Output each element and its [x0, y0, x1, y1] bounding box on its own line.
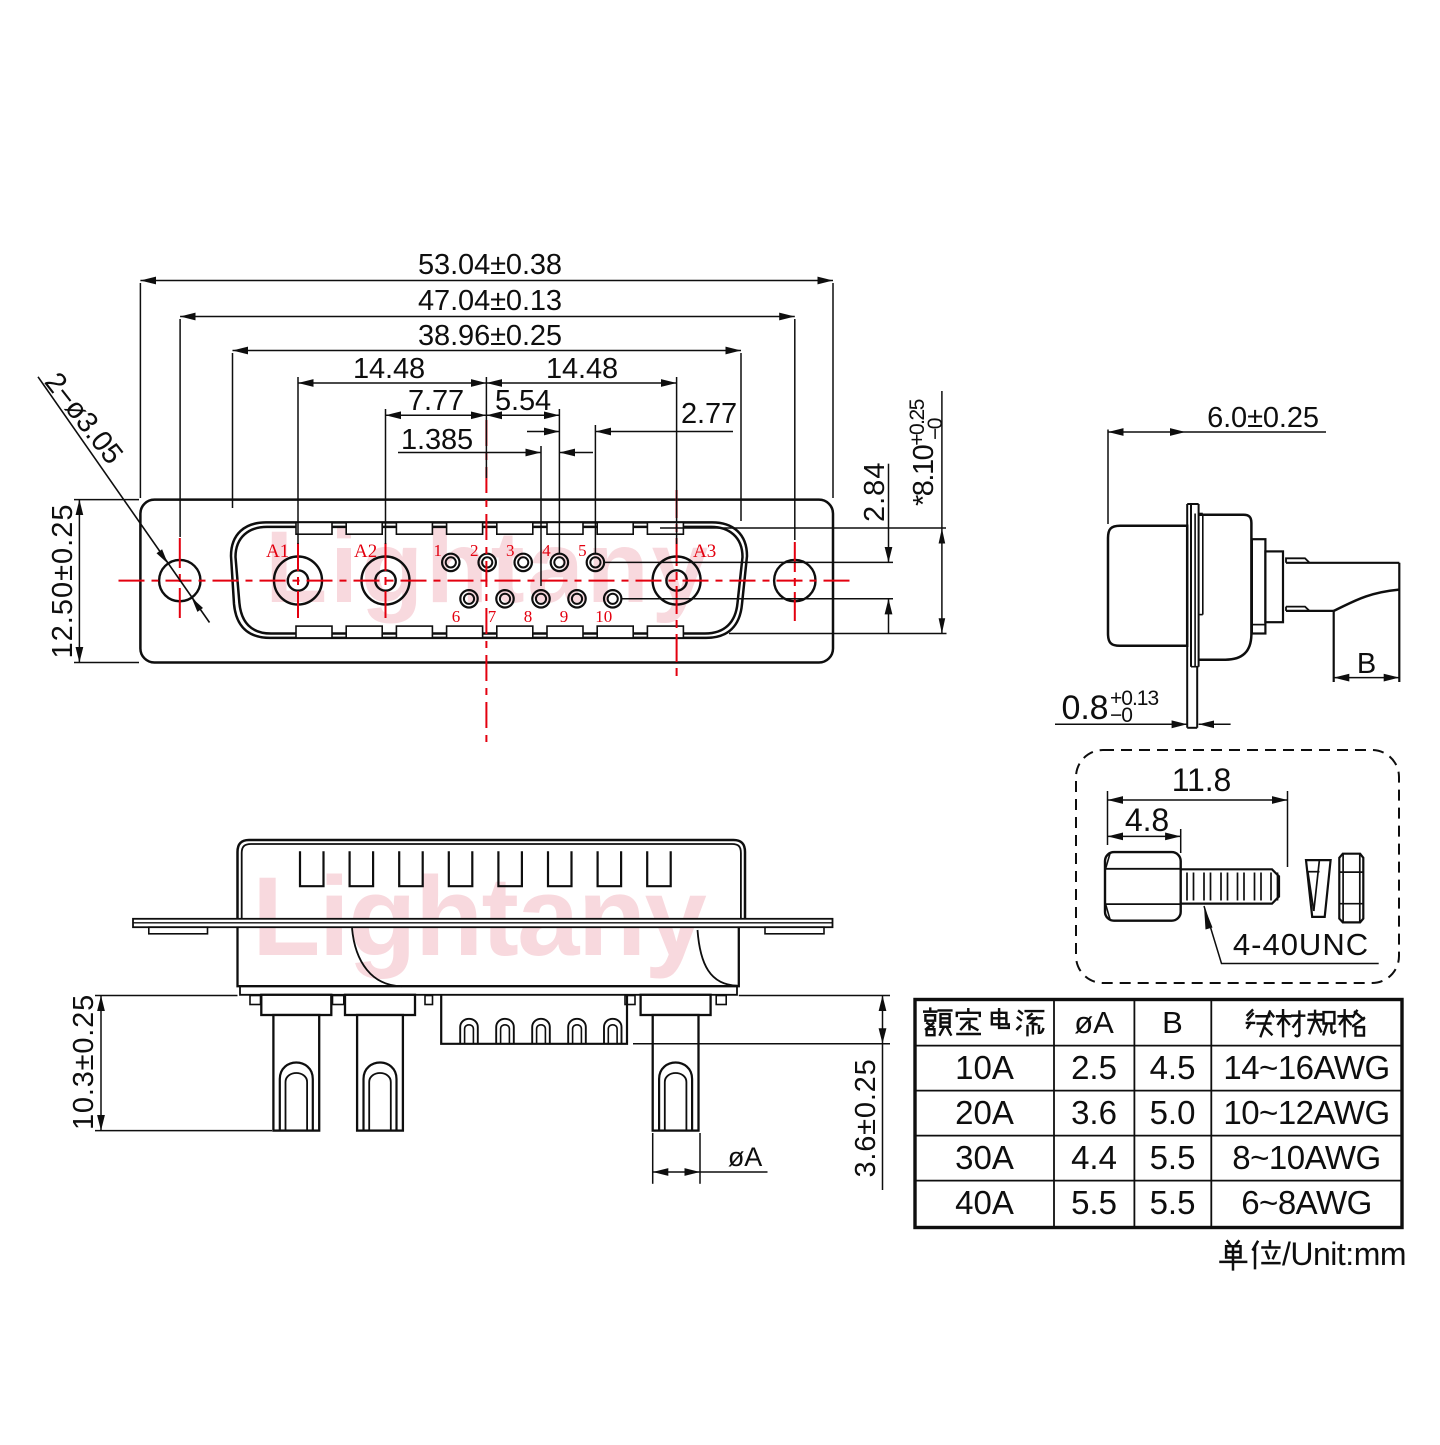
svg-text:øA: øA	[728, 1142, 762, 1172]
svg-text:14.48: 14.48	[546, 353, 618, 385]
svg-text:A1: A1	[266, 541, 289, 562]
svg-text:2.77: 2.77	[681, 398, 737, 430]
svg-text:10A: 10A	[955, 1049, 1014, 1086]
svg-text:14~16AWG: 14~16AWG	[1223, 1049, 1389, 1086]
svg-text:40A: 40A	[955, 1184, 1014, 1221]
svg-text:9: 9	[560, 607, 569, 626]
svg-text:53.04±0.38: 53.04±0.38	[418, 249, 562, 281]
svg-text:B: B	[1162, 1005, 1183, 1040]
svg-text:1: 1	[434, 541, 443, 560]
svg-text:3: 3	[506, 541, 515, 560]
svg-text:5.0: 5.0	[1150, 1094, 1196, 1131]
svg-text:3.6±0.25: 3.6±0.25	[850, 1058, 882, 1177]
svg-text:3.6: 3.6	[1071, 1094, 1117, 1131]
svg-text:1.385: 1.385	[401, 424, 473, 456]
svg-text:4.8: 4.8	[1125, 802, 1169, 838]
svg-text:5.54: 5.54	[495, 385, 551, 417]
svg-text:0.8: 0.8	[1062, 689, 1109, 727]
svg-text:8: 8	[524, 607, 533, 626]
svg-text:47.04±0.13: 47.04±0.13	[418, 285, 562, 317]
svg-text:6: 6	[452, 607, 461, 626]
svg-text:10~12AWG: 10~12AWG	[1223, 1094, 1389, 1131]
svg-text:5.5: 5.5	[1071, 1184, 1117, 1221]
svg-text:12.50±0.25: 12.50±0.25	[47, 504, 79, 659]
svg-text:38.96±0.25: 38.96±0.25	[418, 320, 562, 352]
svg-text:4.4: 4.4	[1071, 1139, 1117, 1176]
svg-text:2: 2	[470, 541, 479, 560]
svg-text:øA: øA	[1074, 1005, 1114, 1040]
svg-text:B: B	[1357, 648, 1376, 680]
svg-text:2.84: 2.84	[859, 462, 891, 522]
svg-text:Lightany: Lightany	[252, 854, 706, 979]
svg-text:11.8: 11.8	[1172, 762, 1232, 798]
svg-text:4: 4	[542, 541, 551, 560]
svg-text:30A: 30A	[955, 1139, 1014, 1176]
svg-text:5.5: 5.5	[1150, 1184, 1196, 1221]
svg-text:8~10AWG: 8~10AWG	[1232, 1139, 1380, 1176]
svg-text:6~8AWG: 6~8AWG	[1241, 1184, 1372, 1221]
svg-text:5: 5	[578, 541, 587, 560]
svg-text:A2: A2	[354, 541, 377, 562]
svg-text:7.77: 7.77	[408, 385, 464, 417]
svg-text:20A: 20A	[955, 1094, 1014, 1131]
svg-text:/Unit:mm: /Unit:mm	[1282, 1236, 1406, 1272]
svg-text:10.3±0.25: 10.3±0.25	[68, 994, 100, 1130]
svg-text:A3: A3	[693, 541, 716, 562]
svg-text:4-40UNC: 4-40UNC	[1233, 927, 1369, 962]
svg-text:7: 7	[488, 607, 497, 626]
svg-text:4.5: 4.5	[1150, 1049, 1196, 1086]
svg-text:5.5: 5.5	[1150, 1139, 1196, 1176]
svg-text:6.0±0.25: 6.0±0.25	[1207, 402, 1319, 434]
svg-text:14.48: 14.48	[353, 353, 425, 385]
svg-text:2.5: 2.5	[1071, 1049, 1117, 1086]
svg-text:10: 10	[595, 607, 612, 626]
